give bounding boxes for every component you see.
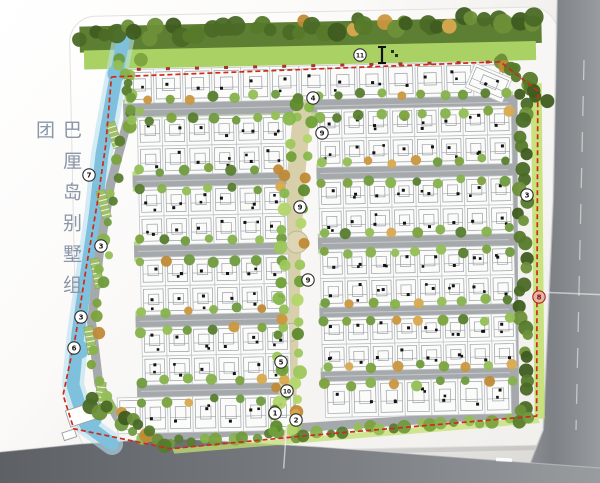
marker-11-badge: 11 [354,49,366,61]
marker-4-badge: 4 [307,92,319,104]
svg-text:6: 6 [72,344,77,352]
marker-10-badge: 10 [281,385,293,397]
marker-3-badge: 3 [521,189,533,201]
svg-text:3: 3 [99,242,104,250]
marker-5-badge: 5 [275,356,287,368]
svg-text:4: 4 [311,94,316,102]
marker-9-badge: 9 [316,127,328,139]
svg-text:3: 3 [525,191,530,199]
svg-text:1: 1 [273,409,278,417]
svg-text:9: 9 [320,129,325,137]
site-plan-photo: 11499938510127336 巴厘岛别墅组团 [0,0,600,483]
marker-1-badge: 1 [269,407,281,419]
svg-text:3: 3 [79,313,84,321]
svg-text:9: 9 [298,203,303,211]
marker-6-badge: 6 [68,342,80,354]
marker-7-badge: 7 [83,169,95,181]
svg-text:5: 5 [279,358,284,366]
svg-text:10: 10 [283,389,291,395]
site-plan-svg: 11499938510127336 [0,0,600,483]
marker-3-badge: 3 [75,311,87,323]
marker-9-badge: 9 [294,201,306,213]
svg-text:9: 9 [306,276,311,284]
marker-2-badge: 2 [290,414,302,426]
svg-text:7: 7 [87,171,92,179]
svg-text:8: 8 [537,293,542,301]
site-title: 巴厘岛别墅组团 [30,120,84,310]
marker-8-badge: 8 [533,291,545,303]
plan-content [53,4,600,473]
svg-text:2: 2 [294,416,299,424]
marker-9-badge: 9 [302,274,314,286]
marker-3-badge: 3 [95,240,107,252]
svg-text:11: 11 [356,53,364,59]
